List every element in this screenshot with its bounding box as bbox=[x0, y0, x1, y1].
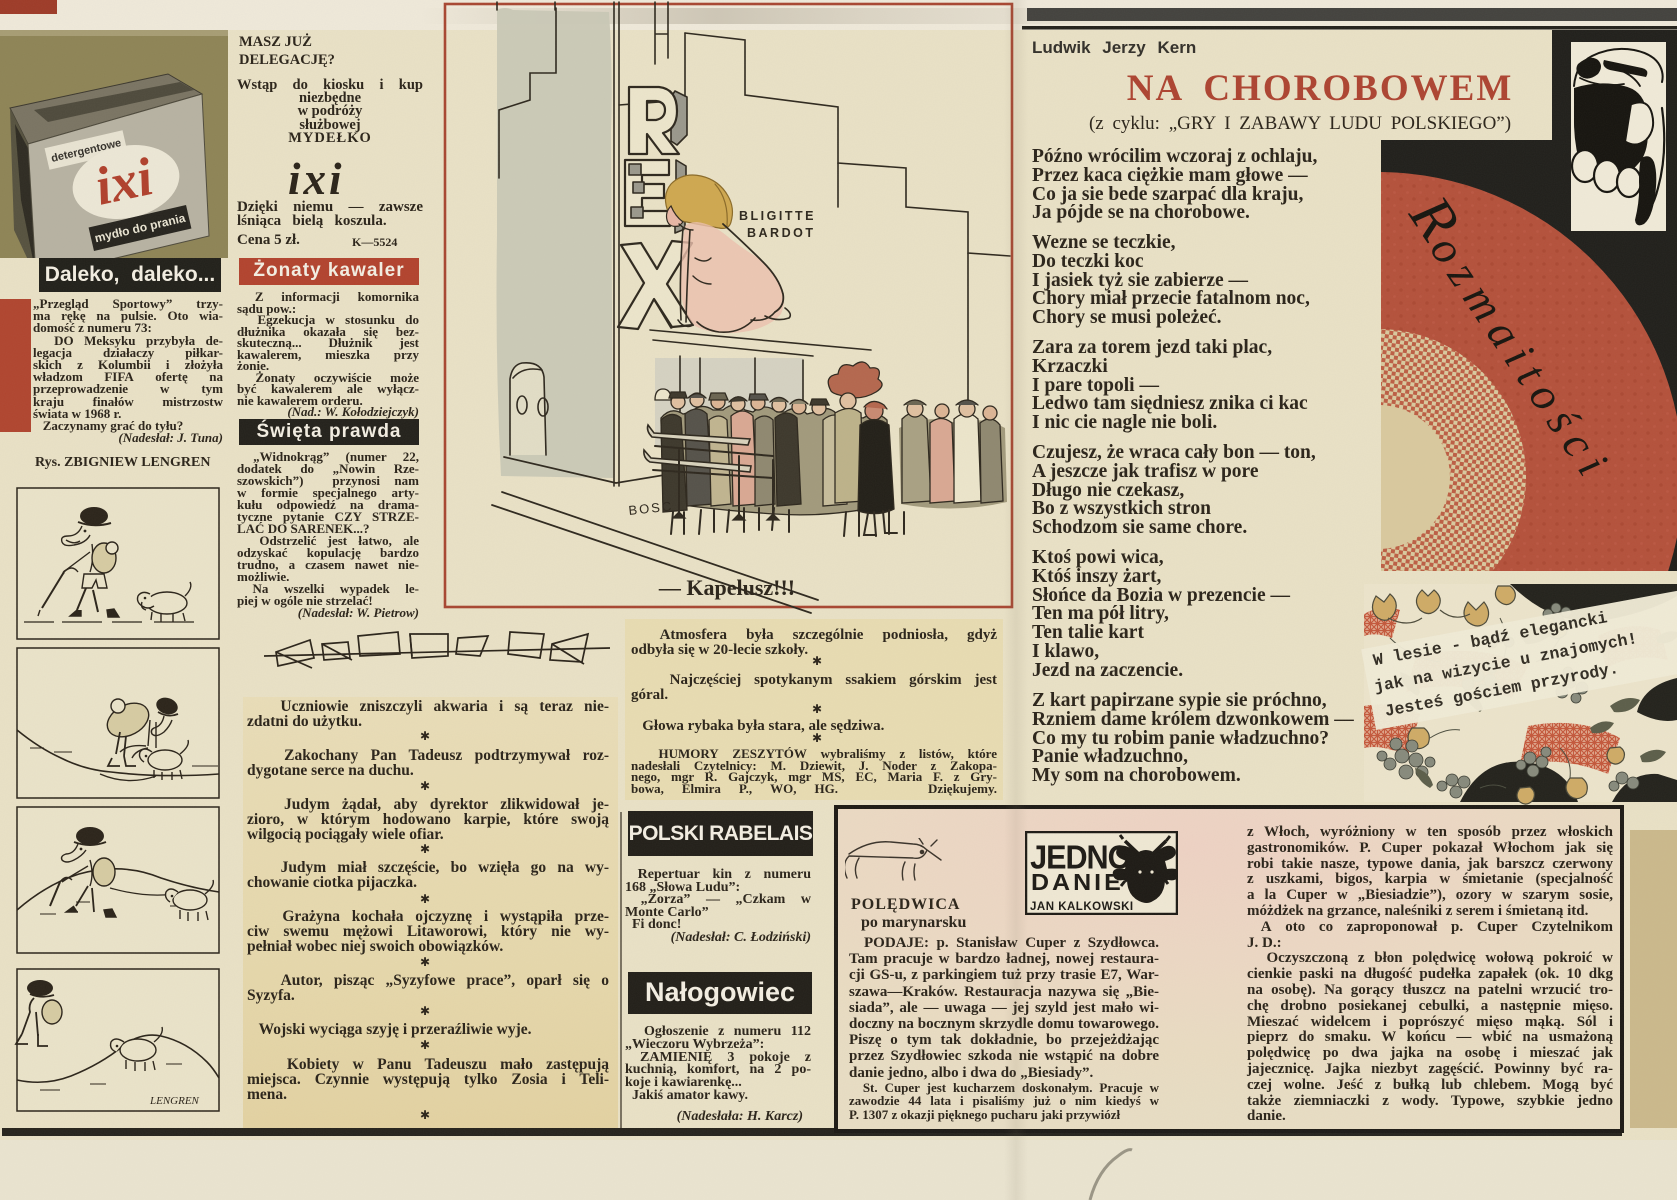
svg-text:— Kapelusz!!!: — Kapelusz!!! bbox=[658, 575, 795, 600]
svg-text:DANIE: DANIE bbox=[1031, 870, 1124, 896]
svg-text:BLIGITTE: BLIGITTE bbox=[739, 209, 816, 223]
svg-text:LENGREN: LENGREN bbox=[149, 1095, 200, 1107]
svg-text:BOSC: BOSC bbox=[628, 498, 674, 518]
svg-text:BARDOT: BARDOT bbox=[747, 226, 815, 240]
svg-text:ixi: ixi bbox=[90, 146, 158, 217]
svg-text:JAN KALKOWSKI: JAN KALKOWSKI bbox=[1030, 901, 1134, 913]
